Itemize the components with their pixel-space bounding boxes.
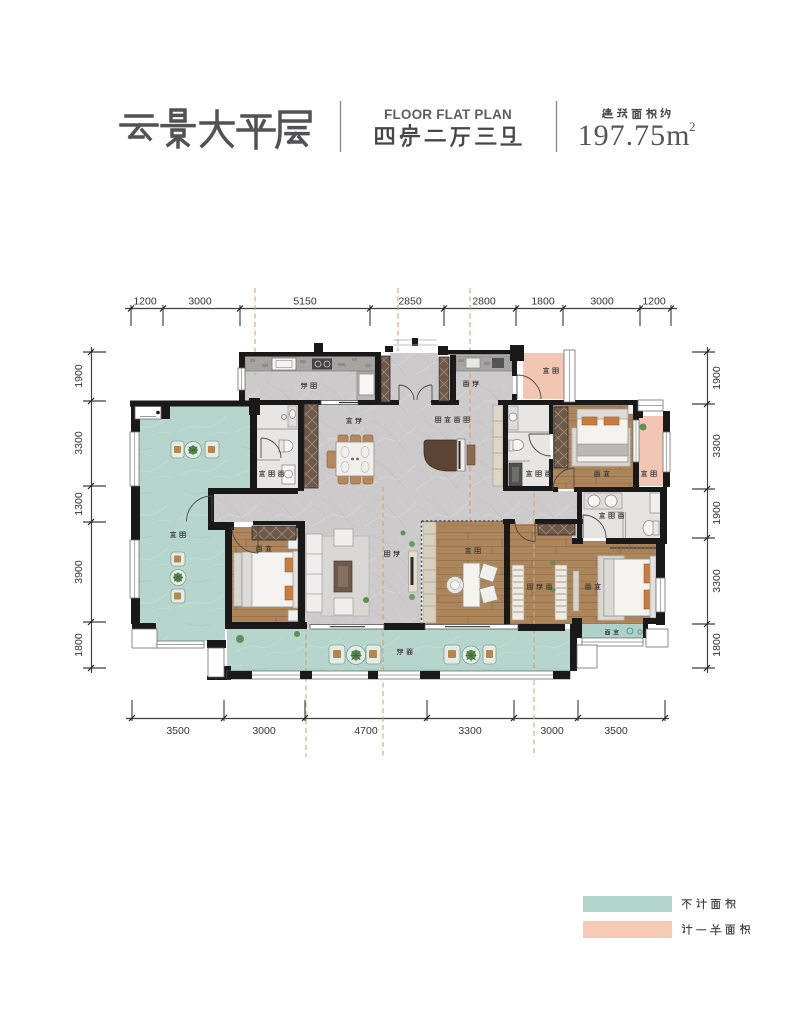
svg-text:FLOOR FLAT PLAN: FLOOR FLAT PLAN (384, 107, 512, 122)
svg-text:1900: 1900 (711, 366, 723, 390)
svg-text:3500: 3500 (604, 725, 628, 737)
svg-text:1900: 1900 (73, 364, 85, 388)
svg-text:3300: 3300 (711, 434, 723, 458)
svg-text:1200: 1200 (642, 296, 666, 308)
svg-text:5150: 5150 (293, 296, 317, 308)
svg-text:3300: 3300 (458, 725, 482, 737)
svg-text:1300: 1300 (73, 492, 85, 516)
svg-text:3000: 3000 (590, 296, 614, 308)
svg-text:2850: 2850 (398, 296, 422, 308)
svg-text:3000: 3000 (540, 725, 564, 737)
svg-text:197.75m: 197.75m (578, 119, 691, 152)
svg-text:2: 2 (689, 119, 696, 134)
svg-text:3000: 3000 (188, 296, 212, 308)
svg-text:3300: 3300 (711, 569, 723, 593)
svg-text:1900: 1900 (711, 501, 723, 525)
svg-text:4700: 4700 (354, 725, 378, 737)
svg-text:3900: 3900 (73, 560, 85, 584)
svg-text:1800: 1800 (711, 633, 723, 657)
svg-text:2800: 2800 (472, 296, 496, 308)
svg-text:3500: 3500 (166, 725, 190, 737)
svg-text:1200: 1200 (133, 296, 157, 308)
svg-text:1800: 1800 (531, 296, 555, 308)
svg-text:3300: 3300 (73, 431, 85, 455)
svg-text:3000: 3000 (252, 725, 276, 737)
svg-text:1800: 1800 (73, 633, 85, 657)
